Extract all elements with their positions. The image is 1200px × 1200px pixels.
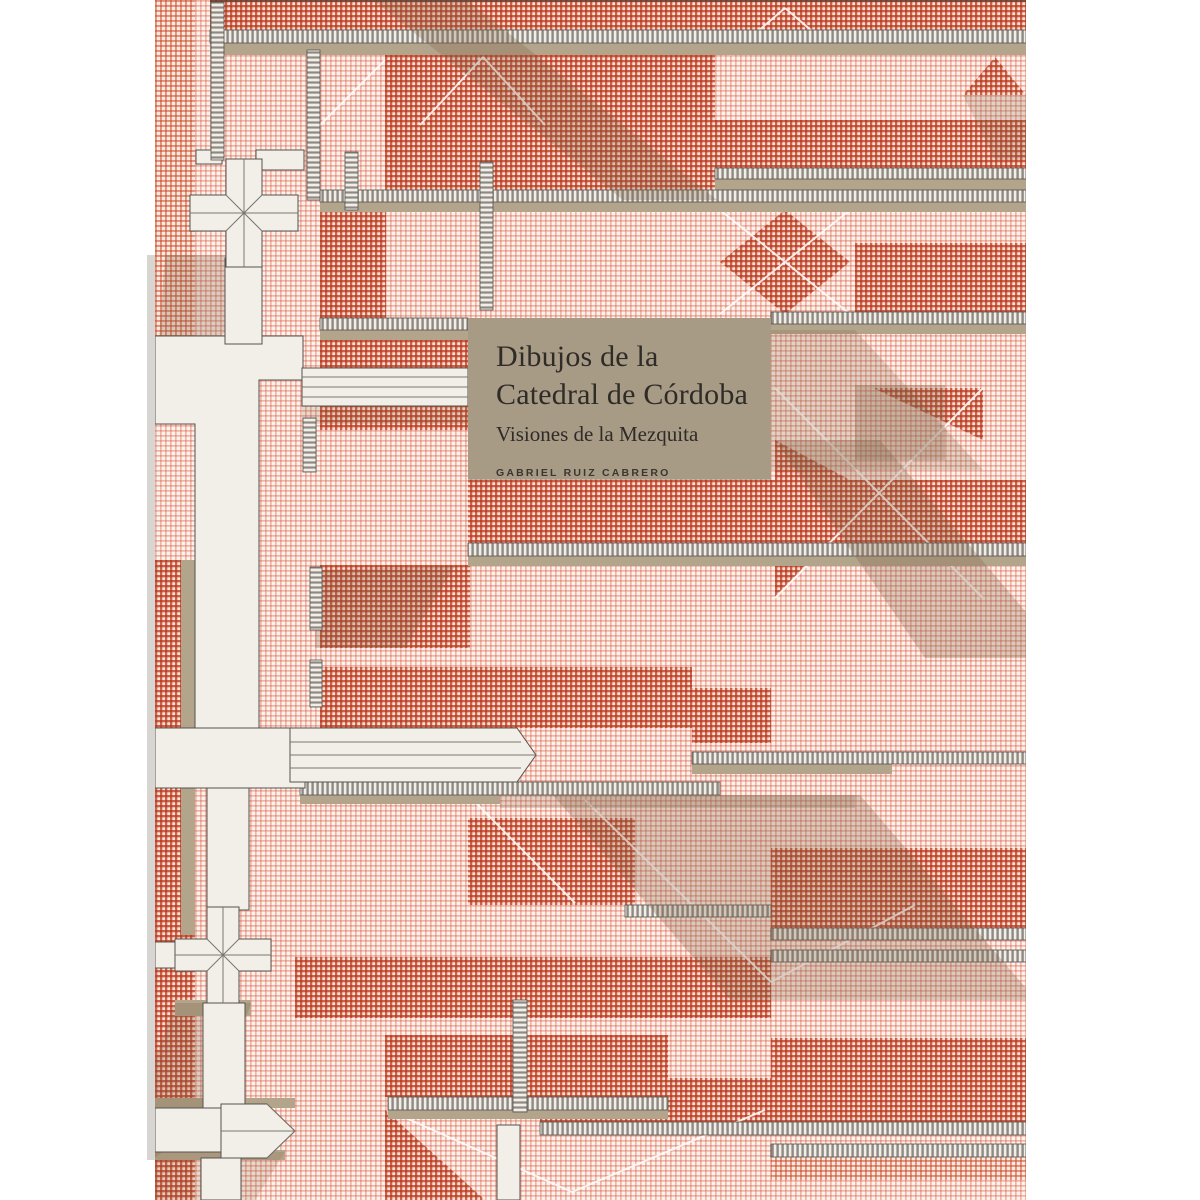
- crossing-band: [155, 728, 305, 788]
- title-line-2: Catedral de Córdoba: [496, 376, 761, 414]
- title-box: Dibujos de la Catedral de Córdoba Vision…: [468, 318, 771, 479]
- book-cover-photo: Dibujos de la Catedral de Córdoba Vision…: [0, 0, 1200, 1200]
- book-author: GABRIEL RUIZ CABRERO: [496, 467, 761, 479]
- scan-edge-shadow: [147, 255, 155, 1160]
- book-title: Dibujos de la Catedral de Córdoba: [496, 338, 761, 414]
- book-cover: Dibujos de la Catedral de Córdoba Vision…: [155, 0, 1026, 1200]
- top-edge-line: [210, 0, 1026, 2]
- book-subtitle: Visiones de la Mezquita: [496, 421, 761, 447]
- title-line-1: Dibujos de la: [496, 338, 761, 376]
- roof-plan-drawing: [155, 0, 1026, 1200]
